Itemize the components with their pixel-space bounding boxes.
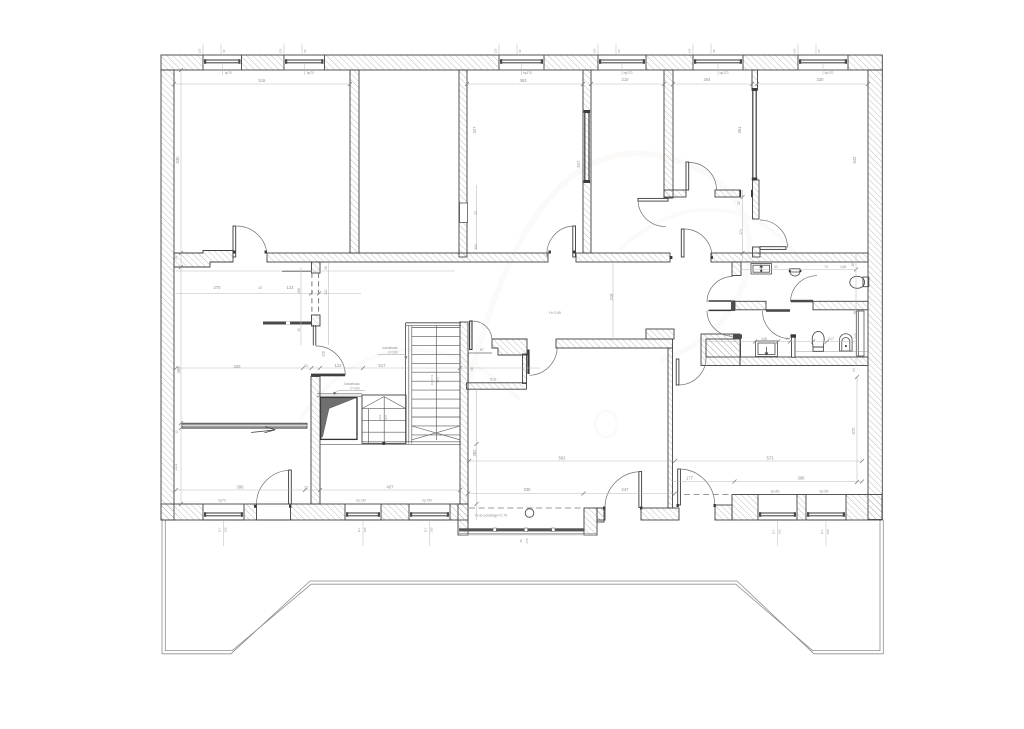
svg-text:hp170: hp170 <box>523 71 532 75</box>
svg-text:396: 396 <box>798 476 806 481</box>
svg-text:254: 254 <box>704 77 712 82</box>
svg-text:195: 195 <box>778 529 782 534</box>
svg-text:hp 150: hp 150 <box>356 499 366 503</box>
svg-text:275: 275 <box>525 538 529 543</box>
svg-text:105: 105 <box>474 244 478 250</box>
svg-text:120: 120 <box>279 48 283 53</box>
svg-text:221: 221 <box>173 463 178 471</box>
svg-text:143: 143 <box>854 333 858 339</box>
svg-text:361: 361 <box>737 126 742 134</box>
svg-text:145: 145 <box>761 337 767 341</box>
svg-text:396: 396 <box>237 485 245 490</box>
svg-text:407: 407 <box>387 485 395 490</box>
svg-text:247: 247 <box>622 487 630 492</box>
svg-text:228: 228 <box>322 351 326 357</box>
svg-text:26: 26 <box>324 266 328 270</box>
svg-text:24: 24 <box>174 256 178 260</box>
svg-text:74: 74 <box>824 265 828 269</box>
svg-text:h=100: h=100 <box>389 351 398 355</box>
svg-text:120: 120 <box>793 48 797 53</box>
svg-text:120: 120 <box>198 48 202 53</box>
svg-text:H do podciagu=2,70: H do podciagu=2,70 <box>475 513 507 517</box>
svg-text:10: 10 <box>297 328 301 332</box>
svg-text:23: 23 <box>304 486 308 490</box>
svg-text:217: 217 <box>828 337 834 341</box>
svg-text:363: 363 <box>520 78 528 83</box>
svg-text:22: 22 <box>737 201 741 205</box>
svg-text:11x17,6: 11x17,6 <box>430 374 434 385</box>
svg-text:320: 320 <box>817 77 825 82</box>
svg-text:90: 90 <box>518 49 522 53</box>
svg-text:18: 18 <box>853 311 857 315</box>
svg-text:52: 52 <box>474 211 478 215</box>
svg-text:117: 117 <box>357 527 361 532</box>
svg-text:15,5: 15,5 <box>384 415 388 421</box>
svg-text:573: 573 <box>767 456 775 461</box>
svg-text:530: 530 <box>175 156 180 164</box>
svg-text:10: 10 <box>258 286 262 290</box>
svg-text:382: 382 <box>472 449 477 457</box>
svg-text:35: 35 <box>519 539 523 543</box>
svg-text:117: 117 <box>423 527 427 532</box>
svg-text:148: 148 <box>840 265 846 269</box>
svg-text:562: 562 <box>559 456 567 461</box>
svg-text:195: 195 <box>826 529 830 534</box>
svg-text:hp170: hp170 <box>720 71 729 75</box>
svg-text:117: 117 <box>771 529 775 534</box>
svg-text:hp 150: hp 150 <box>422 499 432 503</box>
svg-text:347: 347 <box>472 126 477 134</box>
svg-text:195: 195 <box>363 527 367 532</box>
svg-text:117: 117 <box>217 527 221 532</box>
svg-text:90: 90 <box>470 367 474 371</box>
svg-text:10: 10 <box>175 430 179 434</box>
svg-text:218: 218 <box>609 293 614 301</box>
svg-text:90: 90 <box>817 49 821 53</box>
svg-text:23: 23 <box>304 364 308 368</box>
svg-text:hp170: hp170 <box>825 71 834 75</box>
svg-text:hp70: hp70 <box>225 71 232 75</box>
svg-text:h=100: h=100 <box>351 387 360 391</box>
svg-text:121: 121 <box>324 289 328 295</box>
svg-text:177: 177 <box>686 476 694 481</box>
svg-text:270: 270 <box>214 285 222 290</box>
svg-text:120: 120 <box>494 48 498 53</box>
svg-text:372: 372 <box>851 427 856 435</box>
svg-text:90: 90 <box>712 49 716 53</box>
svg-text:210: 210 <box>622 77 630 82</box>
svg-text:166: 166 <box>297 288 301 294</box>
svg-text:hp70: hp70 <box>218 499 225 503</box>
svg-text:195: 195 <box>430 527 434 532</box>
svg-text:403: 403 <box>234 364 242 369</box>
svg-text:hp150: hp150 <box>771 490 780 494</box>
svg-text:16,3: 16,3 <box>436 377 440 383</box>
svg-text:195: 195 <box>224 527 228 532</box>
svg-text:5x26: 5x26 <box>378 414 382 421</box>
svg-text:542: 542 <box>852 156 857 164</box>
svg-text:balustrada: balustrada <box>383 346 398 350</box>
svg-text:hp70: hp70 <box>307 71 314 75</box>
svg-text:120: 120 <box>688 48 692 53</box>
svg-text:117: 117 <box>820 529 824 534</box>
svg-text:123: 123 <box>335 363 343 368</box>
svg-text:11: 11 <box>785 337 789 341</box>
svg-text:hp150: hp150 <box>820 490 829 494</box>
svg-text:24: 24 <box>852 368 856 372</box>
svg-text:174: 174 <box>739 229 743 235</box>
svg-text:21: 21 <box>774 265 778 269</box>
svg-text:90: 90 <box>222 49 226 53</box>
svg-text:90: 90 <box>303 49 307 53</box>
svg-text:517: 517 <box>379 363 387 368</box>
svg-text:466: 466 <box>176 366 181 374</box>
svg-text:87: 87 <box>480 348 484 352</box>
svg-text:H+2,95: H+2,95 <box>549 311 561 315</box>
svg-text:547: 547 <box>576 160 581 168</box>
svg-text:120: 120 <box>593 48 597 53</box>
svg-text:16: 16 <box>851 263 855 267</box>
svg-text:90: 90 <box>617 49 621 53</box>
svg-text:balustrada: balustrada <box>345 382 360 386</box>
svg-text:515: 515 <box>259 78 267 83</box>
svg-text:hp170: hp170 <box>624 71 633 75</box>
svg-text:335: 335 <box>524 487 532 492</box>
svg-text:123: 123 <box>287 285 295 290</box>
svg-text:513: 513 <box>490 378 496 382</box>
